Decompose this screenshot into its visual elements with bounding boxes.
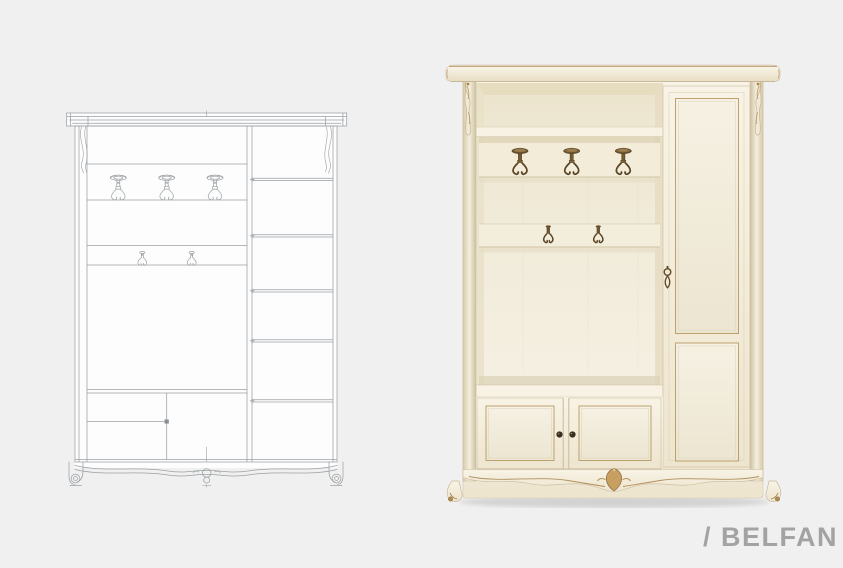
open-niche [476, 83, 663, 397]
lower-door-right-panel [579, 406, 651, 461]
lower-doors [476, 397, 663, 470]
brand-logo-name: BELFAN [721, 522, 838, 552]
cornice [446, 65, 780, 82]
door-lower-panel [676, 343, 739, 461]
scroll-foot-left [447, 481, 462, 502]
door-upper-panel [676, 99, 739, 334]
drawing-body-fill [75, 126, 337, 462]
technical-drawing-view [58, 110, 348, 495]
right-pilaster [750, 81, 763, 481]
lower-door-left-panel [486, 406, 554, 461]
niche-ceiling [476, 83, 663, 95]
seat-shadow [479, 376, 660, 385]
knob-highlight [558, 433, 560, 435]
tall-cabinet-door [663, 86, 750, 467]
brand-logo: /BELFAN [703, 522, 838, 553]
drawing-joint-mark [165, 419, 169, 423]
brand-logo-slash: / [703, 522, 712, 552]
product-photo-view [438, 56, 790, 508]
rail-shadow [479, 177, 660, 182]
scroll-foot-right [766, 481, 781, 502]
top-shelf-shadow [479, 137, 660, 144]
top-shelf [476, 127, 663, 137]
door-knob [556, 431, 562, 437]
drawing-apron-fill [75, 462, 337, 468]
door-knob [569, 431, 575, 437]
knob-highlight [571, 433, 573, 435]
product-image: /BELFAN [0, 0, 843, 568]
rail-shadow [479, 247, 660, 252]
hook-rail-lower [479, 224, 660, 247]
wardrobe-photo [438, 56, 790, 508]
wardrobe-line-drawing [58, 110, 348, 495]
bench-seat [476, 385, 663, 397]
left-pilaster [463, 81, 476, 481]
